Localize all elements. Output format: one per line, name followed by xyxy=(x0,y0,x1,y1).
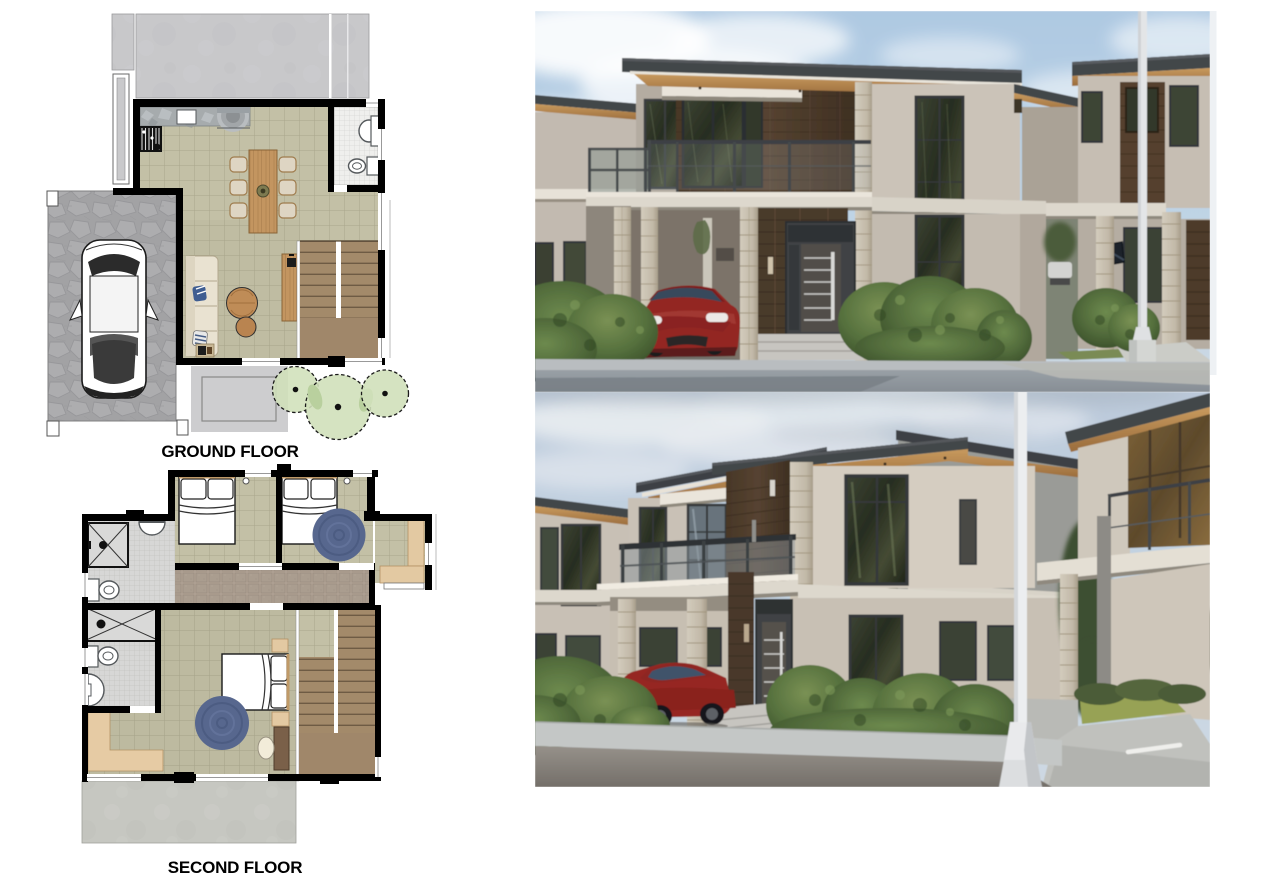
svg-text:SECOND FLOOR: SECOND FLOOR xyxy=(168,858,303,877)
svg-text:GROUND FLOOR: GROUND FLOOR xyxy=(161,442,298,461)
